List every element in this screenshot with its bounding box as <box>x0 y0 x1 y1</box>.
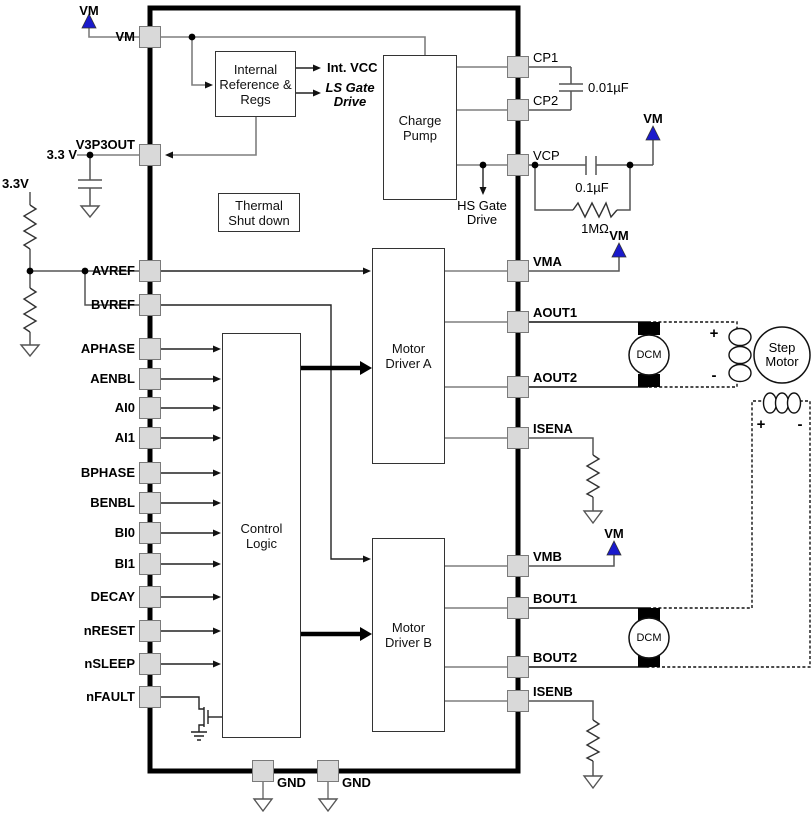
label-line: LS Gate <box>320 81 380 95</box>
pin-label-nsleep: nSLEEP <box>5 656 135 671</box>
pin-vm <box>139 26 161 48</box>
pin-label-aenbl: AENBL <box>5 371 135 386</box>
vm-label-vmb: VM <box>600 526 628 541</box>
pin-label-vmb: VMB <box>533 549 562 564</box>
dcm-label-a: DCM <box>629 349 669 361</box>
pin-label-ai0: AI0 <box>5 400 135 415</box>
block-line: Charge <box>399 113 442 128</box>
plus-sign-a: + <box>706 325 722 342</box>
pin-ai1 <box>139 427 161 449</box>
pin-bvref <box>139 294 161 316</box>
label-line: Drive <box>320 95 380 109</box>
pin-v3p3out <box>139 144 161 166</box>
vcp-capacitor-value: 0.1µF <box>573 180 611 195</box>
pin-gnd-1 <box>252 760 274 782</box>
pin-label-nfault: nFAULT <box>5 689 135 704</box>
block-line: Internal <box>234 62 277 77</box>
block-line: Driver B <box>385 635 432 650</box>
dcm-label-b: DCM <box>629 632 669 644</box>
pin-bout2 <box>507 656 529 678</box>
pin-vmb <box>507 555 529 577</box>
block-diagram-canvas: Internal Reference & Regs Thermal Shut d… <box>0 0 811 814</box>
block-line: Shut down <box>228 213 289 228</box>
vm-label-vcp: VM <box>639 111 667 126</box>
pin-label-ai1: AI1 <box>5 430 135 445</box>
pin-aenbl <box>139 368 161 390</box>
block-line: Regs <box>240 92 270 107</box>
pin-label-nreset: nRESET <box>5 623 135 638</box>
minus-sign-b: - <box>792 416 808 433</box>
block-line: Logic <box>246 536 277 551</box>
block-line: Driver A <box>385 356 431 371</box>
pin-bout1 <box>507 597 529 619</box>
plus-sign-b: + <box>753 416 769 433</box>
pin-label-isenb: ISENB <box>533 684 573 699</box>
control-bus-arrowheads <box>360 361 372 641</box>
pin-cp1 <box>507 56 529 78</box>
pin-aout1 <box>507 311 529 333</box>
block-motor-driver-b: Motor Driver B <box>372 538 445 732</box>
cp-capacitor-value: 0.01µF <box>588 80 629 95</box>
pin-isena <box>507 427 529 449</box>
pin-decay <box>139 586 161 608</box>
pin-bi1 <box>139 553 161 575</box>
pin-label-cp2: CP2 <box>533 93 558 108</box>
pin-label-gnd-1: GND <box>277 775 306 790</box>
pin-label-vcp: VCP <box>533 148 560 163</box>
v33-divider-label: 3.3V <box>2 176 29 191</box>
pin-nreset <box>139 620 161 642</box>
pin-label-aphase: APHASE <box>5 341 135 356</box>
block-line: Reference & <box>219 77 291 92</box>
pin-bi0 <box>139 522 161 544</box>
hs-gate-drive-label: HS Gate Drive <box>447 199 517 227</box>
pin-label-bvref: BVREF <box>5 297 135 312</box>
pin-label-bi1: BI1 <box>5 556 135 571</box>
pin-label-decay: DECAY <box>5 589 135 604</box>
vm-label-vma: VM <box>605 228 633 243</box>
pin-avref <box>139 260 161 282</box>
label-line: Motor <box>752 355 811 369</box>
pin-label-isena: ISENA <box>533 421 573 436</box>
step-motor-label: Step Motor <box>752 341 811 369</box>
pin-bphase <box>139 462 161 484</box>
label-line: Step <box>752 341 811 355</box>
pin-label-vma: VMA <box>533 254 562 269</box>
pin-label-aout2: AOUT2 <box>533 370 577 385</box>
pin-nsleep <box>139 653 161 675</box>
pin-vma <box>507 260 529 282</box>
label-line: HS Gate <box>447 199 517 213</box>
pin-label-aout1: AOUT1 <box>533 305 577 320</box>
pin-label-bout1: BOUT1 <box>533 591 577 606</box>
block-line: Control <box>241 521 283 536</box>
pin-aout2 <box>507 376 529 398</box>
pin-gnd-2 <box>317 760 339 782</box>
pin-benbl <box>139 492 161 514</box>
block-control-logic: Control Logic <box>222 333 301 738</box>
int-vcc-label: Int. VCC <box>327 60 378 75</box>
pin-label-vm: VM <box>5 29 135 44</box>
pin-label-v3p3out: V3P3OUT <box>5 137 135 152</box>
minus-sign-a: - <box>706 367 722 384</box>
pin-ai0 <box>139 397 161 419</box>
pin-label-benbl: BENBL <box>5 495 135 510</box>
pin-label-cp1: CP1 <box>533 50 558 65</box>
pin-cp2 <box>507 99 529 121</box>
pin-isenb <box>507 690 529 712</box>
block-charge-pump: Charge Pump <box>383 55 457 200</box>
pin-vcp <box>507 154 529 176</box>
pin-aphase <box>139 338 161 360</box>
pin-label-bi0: BI0 <box>5 525 135 540</box>
pin-label-avref: AVREF <box>5 263 135 278</box>
block-internal-reference: Internal Reference & Regs <box>215 51 296 117</box>
block-motor-driver-a: Motor Driver A <box>372 248 445 464</box>
pin-label-bphase: BPHASE <box>5 465 135 480</box>
block-line: Thermal <box>235 198 283 213</box>
block-line: Motor <box>392 341 425 356</box>
pin-nfault <box>139 686 161 708</box>
pin-label-bout2: BOUT2 <box>533 650 577 665</box>
pin-label-gnd-2: GND <box>342 775 371 790</box>
ls-gate-drive-label: LS Gate Drive <box>320 81 380 108</box>
block-thermal-shutdown: Thermal Shut down <box>218 193 300 232</box>
nfault-mosfet <box>161 697 222 740</box>
vm-label-top: VM <box>75 3 103 18</box>
block-line: Pump <box>403 128 437 143</box>
label-line: Drive <box>447 213 517 227</box>
block-line: Motor <box>392 620 425 635</box>
chip-outline <box>150 8 518 771</box>
